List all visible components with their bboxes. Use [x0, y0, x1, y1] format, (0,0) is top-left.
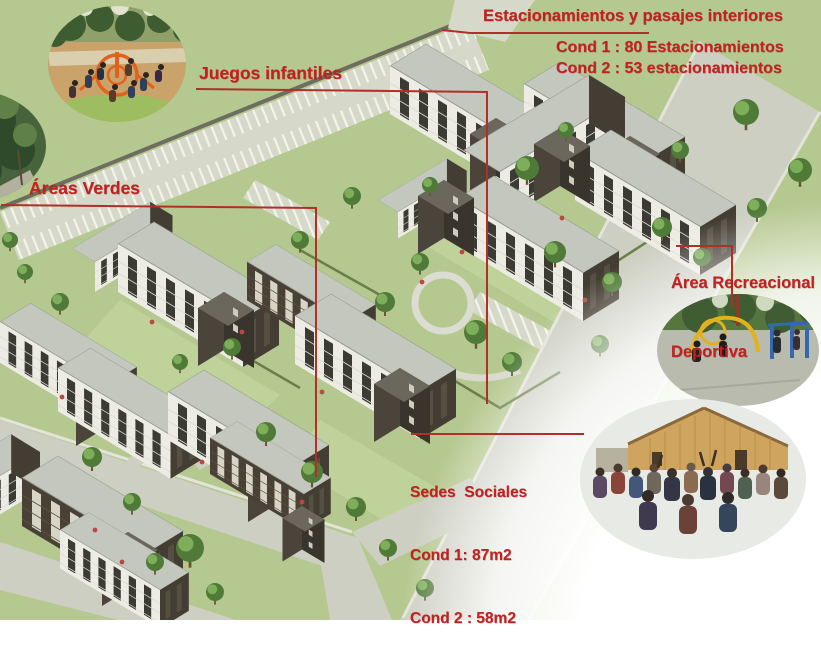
playground-label: Juegos infantiles	[199, 63, 342, 85]
parking-cond2-label: Cond 2 : 53 estacionamientos	[556, 59, 782, 79]
site-plan-slide: Estacionamientos y pasajes interiores Co…	[0, 0, 821, 620]
social-halls-cond2: Cond 2 : 58m2	[410, 608, 527, 629]
social-halls-label: Sedes Sociales Cond 1: 87m2 Cond 2 : 58m…	[410, 440, 527, 650]
community-gathering-photo	[580, 399, 806, 559]
parking-title-label: Estacionamientos y pasajes interiores	[483, 6, 783, 27]
sports-area-label-line1: Área Recreacional	[671, 272, 815, 295]
sports-area-label-line2: Deportiva	[671, 341, 815, 364]
sports-area-label: Área Recreacional Deportiva	[671, 226, 815, 387]
parking-cond1-label: Cond 1 : 80 Estacionamientos	[556, 38, 784, 58]
green-areas-label: Áreas Verdes	[29, 178, 140, 200]
social-halls-cond1: Cond 1: 87m2	[410, 545, 527, 566]
social-halls-title: Sedes Sociales	[410, 482, 527, 503]
